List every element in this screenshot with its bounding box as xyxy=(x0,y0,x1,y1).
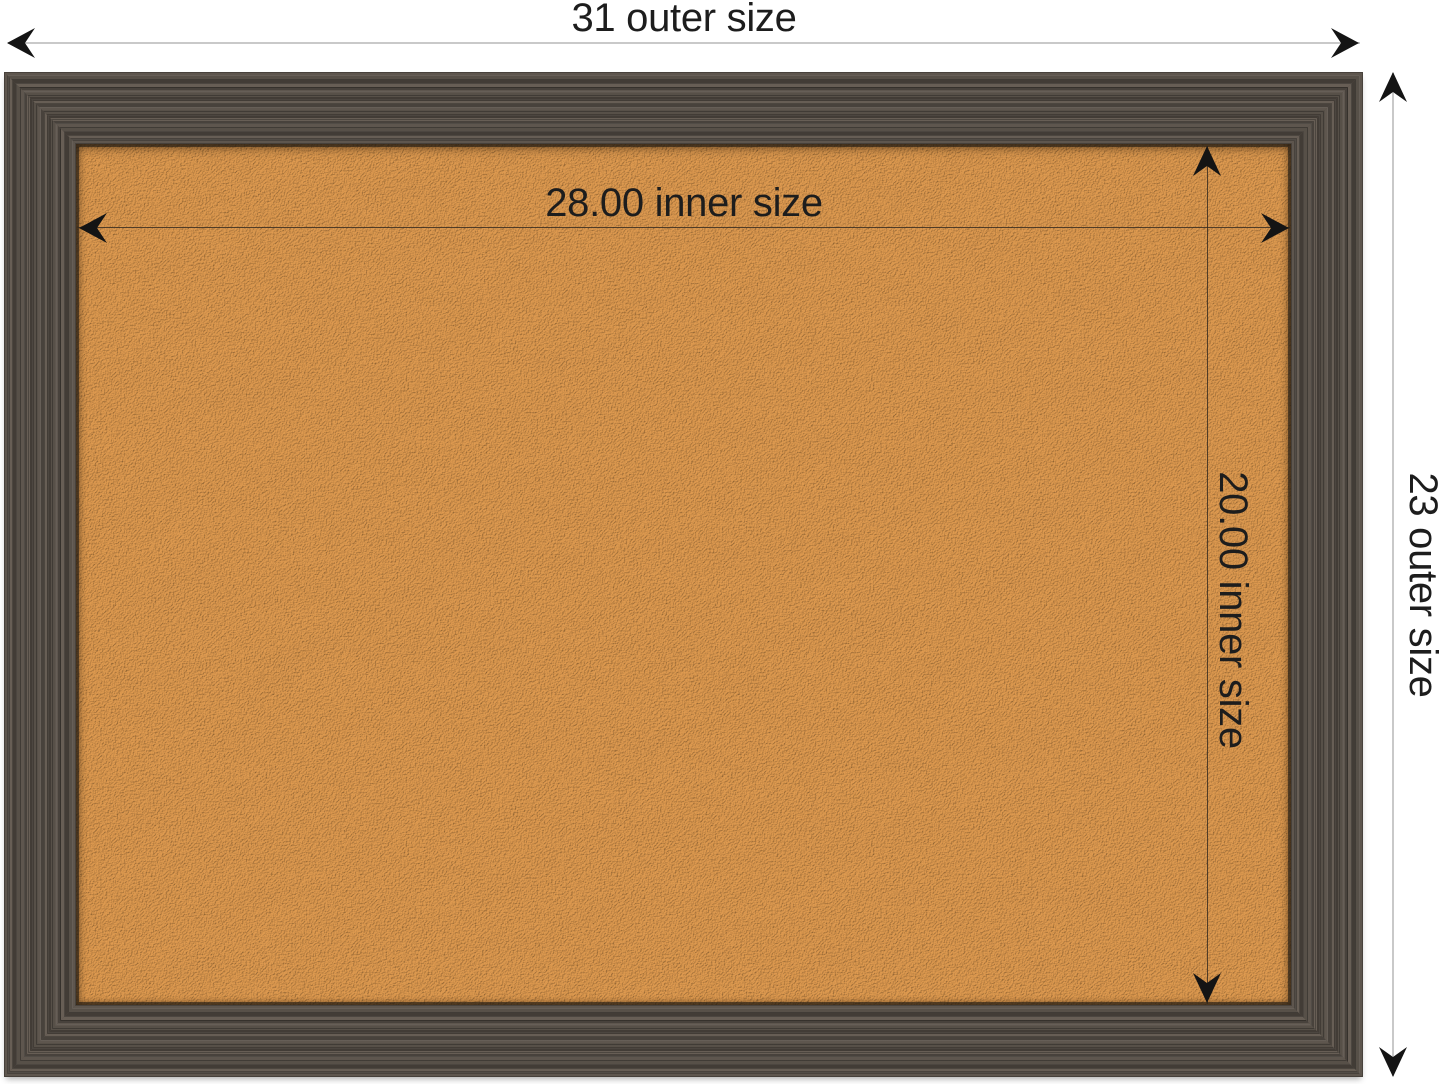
arrow-down-icon xyxy=(1378,1046,1408,1078)
outer-height-dimension-line xyxy=(1392,73,1394,1076)
arrow-up-icon xyxy=(1378,71,1408,103)
arrow-right-icon xyxy=(1330,27,1360,59)
frame-inner-lip-shadow xyxy=(76,144,1291,1005)
inner-width-dimension-line xyxy=(78,227,1290,228)
frame-left-rail xyxy=(4,72,76,1077)
product-dimension-diagram: 31 outer size 23 outer size xyxy=(0,0,1445,1084)
cork-surface xyxy=(76,144,1291,1005)
inner-height-dimension-line xyxy=(1207,146,1208,1004)
frame-top-rail xyxy=(4,72,1363,144)
arrow-left-icon xyxy=(78,212,108,244)
inner-width-label: 28.00 inner size xyxy=(545,179,823,227)
inner-height-label: 20.00 inner size xyxy=(1209,471,1257,749)
arrow-left-icon xyxy=(6,27,36,59)
outer-height-label: 23 outer size xyxy=(1399,472,1445,697)
outer-width-dimension-line xyxy=(8,42,1360,44)
arrow-up-icon xyxy=(1192,145,1222,177)
frame-right-rail xyxy=(1291,72,1363,1077)
frame-bottom-rail xyxy=(4,1005,1363,1077)
arrow-down-icon xyxy=(1192,972,1222,1004)
outer-width-label: 31 outer size xyxy=(571,0,796,42)
arrow-right-icon xyxy=(1260,212,1290,244)
